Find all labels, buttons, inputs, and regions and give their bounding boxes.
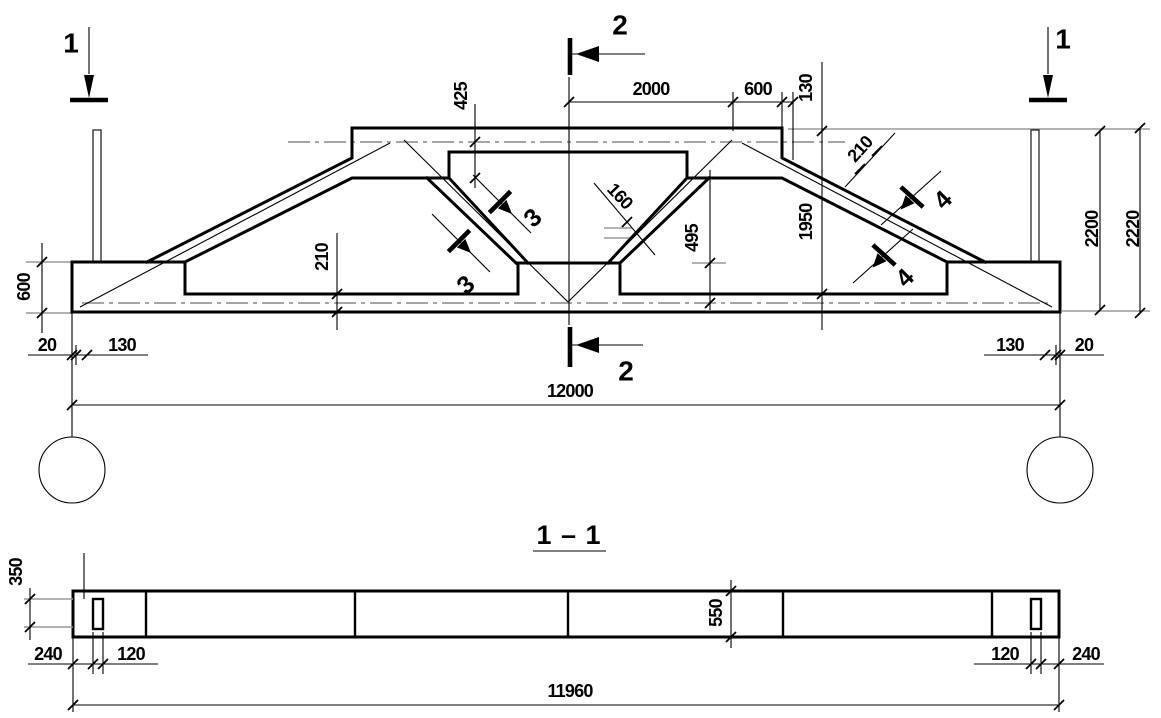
dim-20-right: 20 [1075,335,1094,355]
dim-600-top: 600 [744,79,772,99]
cut4-label-upper: 4 [928,185,958,215]
section1-marker-right: 1 [1029,24,1071,101]
section2-marker-bottom: 2 [570,327,643,387]
beam-segment-joints [146,591,992,637]
elevation-dimensions: 425 2000 600 130 210 1950 2200 2220 160 … [14,62,1145,410]
section-title: 1 – 1 [536,520,601,550]
dim-600-left: 600 [14,272,34,300]
dim-11960: 11960 [547,681,593,701]
section1-label-right: 1 [1055,24,1071,55]
dim-210-chord: 210 [312,242,332,270]
dim-2000: 2000 [633,79,671,99]
extension-lines [26,129,1150,313]
axis-bubble-left [39,437,105,503]
dim-2220: 2220 [1123,210,1143,248]
section2-label-bottom: 2 [618,356,634,387]
section2-label-top: 2 [612,10,628,41]
dim-130-right: 130 [996,335,1024,355]
dim-550: 550 [706,598,726,626]
arrow-left-icon [576,337,599,353]
arrow-down-icon [1043,75,1053,98]
section1-label-left: 1 [63,28,79,59]
dim-130-left: 130 [108,335,136,355]
axis-bubble-right [1027,437,1093,503]
arrow-down-icon [84,75,94,98]
cut4-label-lower: 4 [890,263,920,293]
section-markers: 1 1 2 2 [63,10,1071,387]
dim-240-right: 240 [1072,644,1100,664]
dim-120-right: 120 [991,644,1019,664]
dim-240-left: 240 [34,644,62,664]
dim-160: 160 [603,179,637,213]
slot-left [93,599,103,629]
arrow-left-icon [576,46,599,62]
drawing-sheet: 1 1 2 2 [0,0,1161,718]
cut3-label-lower: 3 [451,270,480,300]
slot-right [1031,599,1041,629]
lifting-loop-left [93,130,101,262]
dim-20-left: 20 [38,335,57,355]
girder-elevation [26,128,1150,313]
section-dimension-ticks [25,586,1064,710]
beam-plan-outline [73,591,1059,637]
dim-12000: 12000 [547,381,594,401]
dim-495: 495 [682,223,702,251]
truss-girder-drawing: 1 1 2 2 [0,0,1161,718]
dim-1950: 1950 [796,203,816,241]
dim-210-slope: 210 [843,131,877,166]
section2-marker-top: 2 [570,10,645,76]
support-axes [39,313,1093,503]
cut3-label-upper: 3 [518,203,547,233]
dim-425: 425 [451,81,471,109]
dim-120-left: 120 [117,644,145,664]
dim-2200: 2200 [1082,210,1102,248]
lifting-loop-right [1031,130,1039,262]
dim-130-top: 130 [796,73,816,101]
section1-marker-left: 1 [63,27,108,100]
section-1-1-view: 1 – 1 350 550 240 120 120 240 11960 [6,520,1104,712]
dim-350: 350 [6,557,26,585]
